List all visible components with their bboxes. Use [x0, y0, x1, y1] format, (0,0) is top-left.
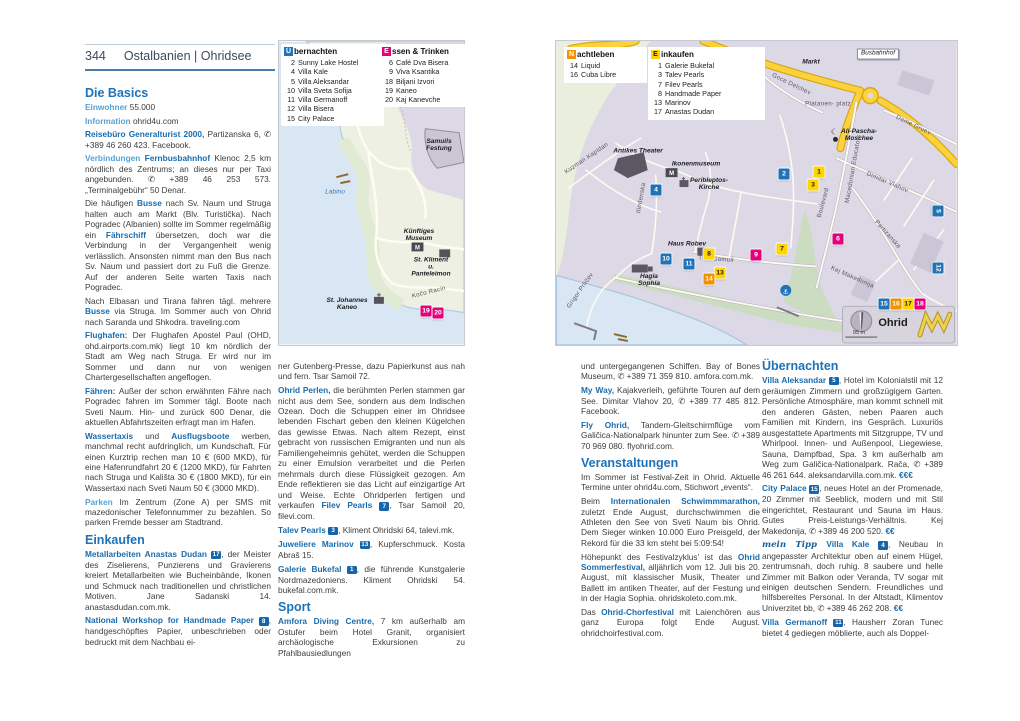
legend-key-essen: E — [382, 47, 391, 56]
legend-item-label: Kaj Kanevche — [396, 95, 440, 104]
seg-text: die berühmten Perlen stammen gar nicht a… — [278, 385, 465, 510]
map-ref-badge: 15 — [809, 485, 819, 494]
seg-text: , Hotel im Kolonialstil mit 12 geräumige… — [762, 375, 943, 480]
seg-lead: Busse — [137, 198, 166, 208]
legend-item: 7 Filev Pearls — [651, 80, 761, 89]
legend-item-label: Biljani Izvori — [396, 77, 434, 86]
paragraph: Beim Internationalen Schwimmmarathon, zu… — [581, 496, 760, 548]
map-ref-badge: 17 — [211, 551, 221, 560]
seg-lead: Flughafen: — [85, 330, 133, 340]
column-events: und untergegangenen Schiffen. Bay of Bon… — [581, 361, 760, 642]
paragraph: Parken Im Zentrum (Zone A) per SMS mit m… — [85, 497, 271, 528]
legend-item: 19 Kaneo — [382, 86, 467, 95]
legend-nachtleben: N achtleben 14 Liquid 16 Cuba Libre — [564, 47, 647, 83]
legend-item-label: Anastas Dudan — [665, 107, 714, 116]
map-ref-badge: 13 — [360, 541, 370, 550]
seg-price: €€€ — [899, 470, 913, 480]
seg-lead: Fernbusbahnhof — [145, 153, 215, 163]
legend-item-label: Villa Aleksandar — [298, 77, 349, 86]
map-ref-badge: 5 — [829, 377, 839, 386]
paragraph: Wassertaxis und Ausflugsboote werben, ma… — [85, 431, 271, 494]
map-kaneo: M Ü bernachten 2 Sunny Lake Hostel — [278, 40, 465, 346]
haus-robev-building — [697, 248, 708, 256]
paragraph: Fähren: Außer der schon erwähnten Fähre … — [85, 386, 271, 428]
paragraph: Juweliere Marinov 13, Kupferschmuck. Kos… — [278, 539, 465, 560]
seg-text: Das — [581, 607, 601, 617]
section-heading: Sport — [278, 602, 465, 612]
legend-item: 17 Anastas Dudan — [651, 107, 761, 116]
legend-item: 13 Marinov — [651, 98, 761, 107]
seg-lead: National Workshop for Handmade Paper — [85, 615, 259, 625]
paragraph: Im Sommer ist Festival-Zeit in Ohrid. Ak… — [581, 472, 760, 493]
legend-uebernachten: Ü bernachten 2 Sunny Lake Hostel 4 Villa… — [281, 44, 384, 126]
seg-label: Parken — [85, 497, 119, 507]
legend-key-nachtleben: N — [567, 50, 576, 59]
seg-text: , Neubau in angepasster Architektur oben… — [762, 539, 943, 613]
seg-label: Information — [85, 116, 133, 126]
paragraph: Information ohrid4u.com — [85, 116, 271, 126]
legend-item: 8 Handmade Paper — [651, 89, 761, 98]
seg-text: und untergegangenen Schiffen. Bay of Bon… — [581, 361, 760, 381]
legend-item: 9 Viva Ksantika — [382, 67, 467, 76]
legend-item: 16 Cuba Libre — [567, 70, 643, 79]
legend-item: 3 Talev Pearls — [651, 70, 761, 79]
paragraph: Das Ohrid-Chorfestival mit Laienchören a… — [581, 607, 760, 638]
legend-item-number: 19 — [382, 86, 393, 95]
legend-item-label: Villa Kale — [298, 67, 328, 76]
seg-lead: Filev Pearls — [321, 500, 379, 510]
paragraph: Höhepunkt des Festivalzyklus’ ist das Oh… — [581, 552, 760, 604]
legend-item-number: 1 — [651, 61, 662, 70]
svg-text:⚓: ⚓ — [783, 288, 789, 296]
legend-item: 20 Kaj Kanevche — [382, 95, 467, 104]
seg-lead: Villa Kale — [826, 539, 878, 549]
paragraph: My Way, Kajakverleih, geführte Touren au… — [581, 385, 760, 416]
legend-key-uebernachten: Ü — [284, 47, 293, 56]
legend-item: 6 Café Dva Bisera — [382, 58, 467, 67]
legend-item: 5 Villa Aleksandar — [284, 77, 380, 86]
legend-item-number: 7 — [651, 80, 662, 89]
future-museum-icon: M — [412, 242, 424, 251]
legend-title: achtleben — [577, 50, 614, 59]
map-ref-badge: 1 — [347, 566, 357, 575]
legend-item: 18 Biljani Izvori — [382, 77, 467, 86]
legend-title: inkaufen — [661, 50, 694, 59]
page-title: Ostalbanien | Ohridsee — [124, 49, 252, 63]
map-ref-badge: 11 — [833, 619, 843, 628]
legend-item-label: Kaneo — [396, 86, 417, 95]
seg-lead: Villa Aleksandar — [762, 375, 829, 385]
anchor-icon: ⚓ — [780, 285, 791, 296]
legend-item-number: 17 — [651, 107, 662, 116]
legend-item: 15 City Palace — [284, 114, 380, 123]
paragraph: Galerie Bukefal 1, die führende Kunstgal… — [278, 564, 465, 596]
paragraph: Villa Aleksandar 5, Hotel im Kolonialsti… — [762, 375, 943, 480]
legend-item-label: Liquid — [581, 61, 600, 70]
seg-text: Beim — [581, 496, 611, 506]
paragraph: National Workshop for Handmade Paper 8, … — [85, 615, 271, 647]
seg-lead: Ohrid-Chorfestival — [601, 607, 679, 617]
legend-title: ssen & Trinken — [392, 47, 449, 56]
seg-lead: Fährschiff — [106, 230, 156, 240]
legend-item-number: 3 — [651, 70, 662, 79]
seg-lead: Wassertaxis — [85, 431, 145, 441]
seg-text: Im Sommer ist Festival-Zeit in Ohrid. Ak… — [581, 472, 760, 492]
svg-text:☾: ☾ — [831, 127, 838, 136]
legend-item-number: 8 — [651, 89, 662, 98]
paragraph: Verbindungen Fernbusbahnhof Klenoc 2,5 k… — [85, 153, 271, 195]
legend-item-number: 13 — [651, 98, 662, 107]
seg-lead: Galerie Bukefal — [278, 564, 347, 574]
legend-item-number: 10 — [284, 86, 295, 95]
column-basics: Die BasicsEinwohner 55.000Information oh… — [85, 88, 271, 650]
seg-tipp: mein Tipp — [762, 540, 826, 550]
page-header: 344Ostalbanien | Ohridsee — [85, 44, 275, 71]
legend-item-number: 2 — [284, 58, 295, 67]
paragraph: Amfora Diving Centre, 7 km außerhalb am … — [278, 616, 465, 658]
legend-item-label: Villa Bisera — [298, 104, 334, 113]
legend-item-number: 15 — [284, 114, 295, 123]
map-info-box — [842, 306, 954, 343]
legend-item-label: Villa Germanoff — [298, 95, 347, 104]
paragraph: Ohrid Perlen, die berühmten Perlen stamm… — [278, 385, 465, 521]
legend-item-number: 5 — [284, 77, 295, 86]
legend-item-label: Villa Sveta Sofija — [298, 86, 352, 95]
seg-lead: Amfora Diving Centre, — [278, 616, 381, 626]
icon-museum-icon: M — [666, 168, 678, 177]
legend-item: 4 Villa Kale — [284, 67, 380, 76]
legend-einkaufen: E inkaufen 1 Galerie Bukefal 3 Talev Pea… — [648, 47, 765, 120]
legend-item-label: Cuba Libre — [581, 70, 616, 79]
legend-item-label: Filev Pearls — [665, 80, 703, 89]
paragraph: ner Gutenberg-Presse, dazu Papierkunst a… — [278, 361, 465, 382]
legend-item-label: Café Dva Bisera — [396, 58, 448, 67]
legend-key-einkaufen: E — [651, 50, 660, 59]
paragraph: mein Tipp Villa Kale 4, Neubau in angepa… — [762, 539, 943, 613]
paragraph: Talev Pearls 3, Kliment Ohridski 64, tal… — [278, 525, 465, 536]
seg-text: Die häufigen — [85, 198, 137, 208]
roundabout — [862, 88, 878, 104]
paragraph: und untergegangenen Schiffen. Bay of Bon… — [581, 361, 760, 382]
legend-item: 2 Sunny Lake Hostel — [284, 58, 380, 67]
legend-item-number: 6 — [382, 58, 393, 67]
legend-item-label: Viva Ksantika — [396, 67, 439, 76]
svg-text:M: M — [415, 245, 420, 251]
legend-item-number: 4 — [284, 67, 295, 76]
seg-text: , Kliment Ohridski 64, talevi.mk. — [338, 525, 454, 535]
st-kliment-church-icon — [439, 249, 450, 257]
legend-item-number: 12 — [284, 104, 295, 113]
seg-lead: Ausflugsboote — [171, 431, 241, 441]
column-shopping-sport: ner Gutenberg-Presse, dazu Papierkunst a… — [278, 361, 465, 661]
legend-item: 14 Liquid — [567, 61, 643, 70]
paragraph: City Palace 15, neues Hotel an der Prome… — [762, 483, 943, 536]
seg-lead: Villa Germanoff — [762, 617, 833, 627]
section-heading: Einkaufen — [85, 535, 271, 545]
seg-text: 55.000 — [130, 102, 155, 112]
legend-title: bernachten — [294, 47, 337, 56]
seg-text: ohrid4u.com — [133, 116, 179, 126]
column-hotels: ÜbernachtenVilla Aleksandar 5, Hotel im … — [762, 361, 943, 641]
seg-lead: Internationalen Schwimmmarathon, — [611, 496, 760, 506]
paragraph: Villa Germanoff 11, Hausherr Zoran Tunec… — [762, 617, 943, 638]
legend-item-number: 18 — [382, 77, 393, 86]
legend-item-number: 16 — [567, 70, 578, 79]
paragraph: Fly Ohrid, Tandem-Gleitschirmflüge vom G… — [581, 420, 760, 451]
seg-price: €€ — [894, 603, 903, 613]
legend-item-label: Handmade Paper — [665, 89, 721, 98]
svg-text:M: M — [669, 171, 674, 177]
map-ref-badge: 8 — [259, 617, 269, 626]
paragraph: Metallarbeiten Anastas Dudan 17, der Mei… — [85, 549, 271, 612]
map-ref-badge: 3 — [328, 527, 338, 536]
legend-item-label: Talev Pearls — [665, 70, 704, 79]
seg-lead: Juweliere Marinov — [278, 539, 360, 549]
legend-item: 12 Villa Bisera — [284, 104, 380, 113]
seg-lead: Reisebüro Generalturist 2000, — [85, 129, 207, 139]
page-number: 344 — [85, 49, 106, 63]
section-heading: Übernachten — [762, 361, 943, 371]
seg-lead: City Palace — [762, 483, 809, 493]
seg-text: und — [145, 431, 171, 441]
seg-text: ner Gutenberg-Presse, dazu Papierkunst a… — [278, 361, 465, 381]
seg-lead: Talev Pearls — [278, 525, 328, 535]
map-ref-badge: 4 — [878, 541, 888, 550]
legend-item-number: 20 — [382, 95, 393, 104]
seg-label: Verbindungen — [85, 153, 145, 163]
seg-lead: Fähren: — [85, 386, 119, 396]
legend-item-label: Galerie Bukefal — [665, 61, 714, 70]
legend-item-label: Marinov — [665, 98, 691, 107]
legend-item-label: City Palace — [298, 114, 334, 123]
paragraph: Einwohner 55.000 — [85, 102, 271, 112]
legend-item: 1 Galerie Bukefal — [651, 61, 761, 70]
seg-label: Einwohner — [85, 102, 130, 112]
seg-text: Höhepunkt des Festivalzyklus’ ist das — [581, 552, 738, 562]
section-heading: Veranstaltungen — [581, 458, 760, 468]
seg-text: Nach Elbasan und Tirana fahren tägl. meh… — [85, 296, 271, 306]
seg-lead: Metallarbeiten Anastas Dudan — [85, 549, 211, 559]
paragraph: Flughafen: Der Flughafen Apostel Paul (O… — [85, 330, 271, 382]
seg-lead: Busse — [85, 306, 114, 316]
legend-item-number: 14 — [567, 61, 578, 70]
section-heading: Die Basics — [85, 88, 271, 98]
paragraph: Reisebüro Generalturist 2000, Partizansk… — [85, 129, 271, 150]
seg-lead: My Way, — [581, 385, 617, 395]
seg-lead: Fly Ohrid, — [581, 420, 641, 430]
paragraph: Nach Elbasan und Tirana fahren tägl. meh… — [85, 296, 271, 327]
map-ref-badge: 7 — [379, 502, 389, 511]
seg-text: zuletzt Ende August, durchschwimmen die … — [581, 507, 760, 548]
seg-lead: Ohrid Perlen, — [278, 385, 333, 395]
legend-essen-trinken: E ssen & Trinken 6 Café Dva Bisera 9 Viv… — [379, 44, 471, 107]
paragraph: Die häufigen Busse nach Sv. Naum und Str… — [85, 198, 271, 292]
legend-item: 10 Villa Sveta Sofija — [284, 86, 380, 95]
legend-item-label: Sunny Lake Hostel — [298, 58, 358, 67]
legend-item: 11 Villa Germanoff — [284, 95, 380, 104]
map-ohrid-town: M ☾ — [555, 40, 958, 346]
guidebook-spread: 344Ostalbanien | Ohridsee Die BasicsEinw… — [0, 0, 1020, 721]
legend-item-number: 11 — [284, 95, 295, 104]
seg-price: €€ — [885, 526, 894, 536]
legend-item-number: 9 — [382, 67, 393, 76]
